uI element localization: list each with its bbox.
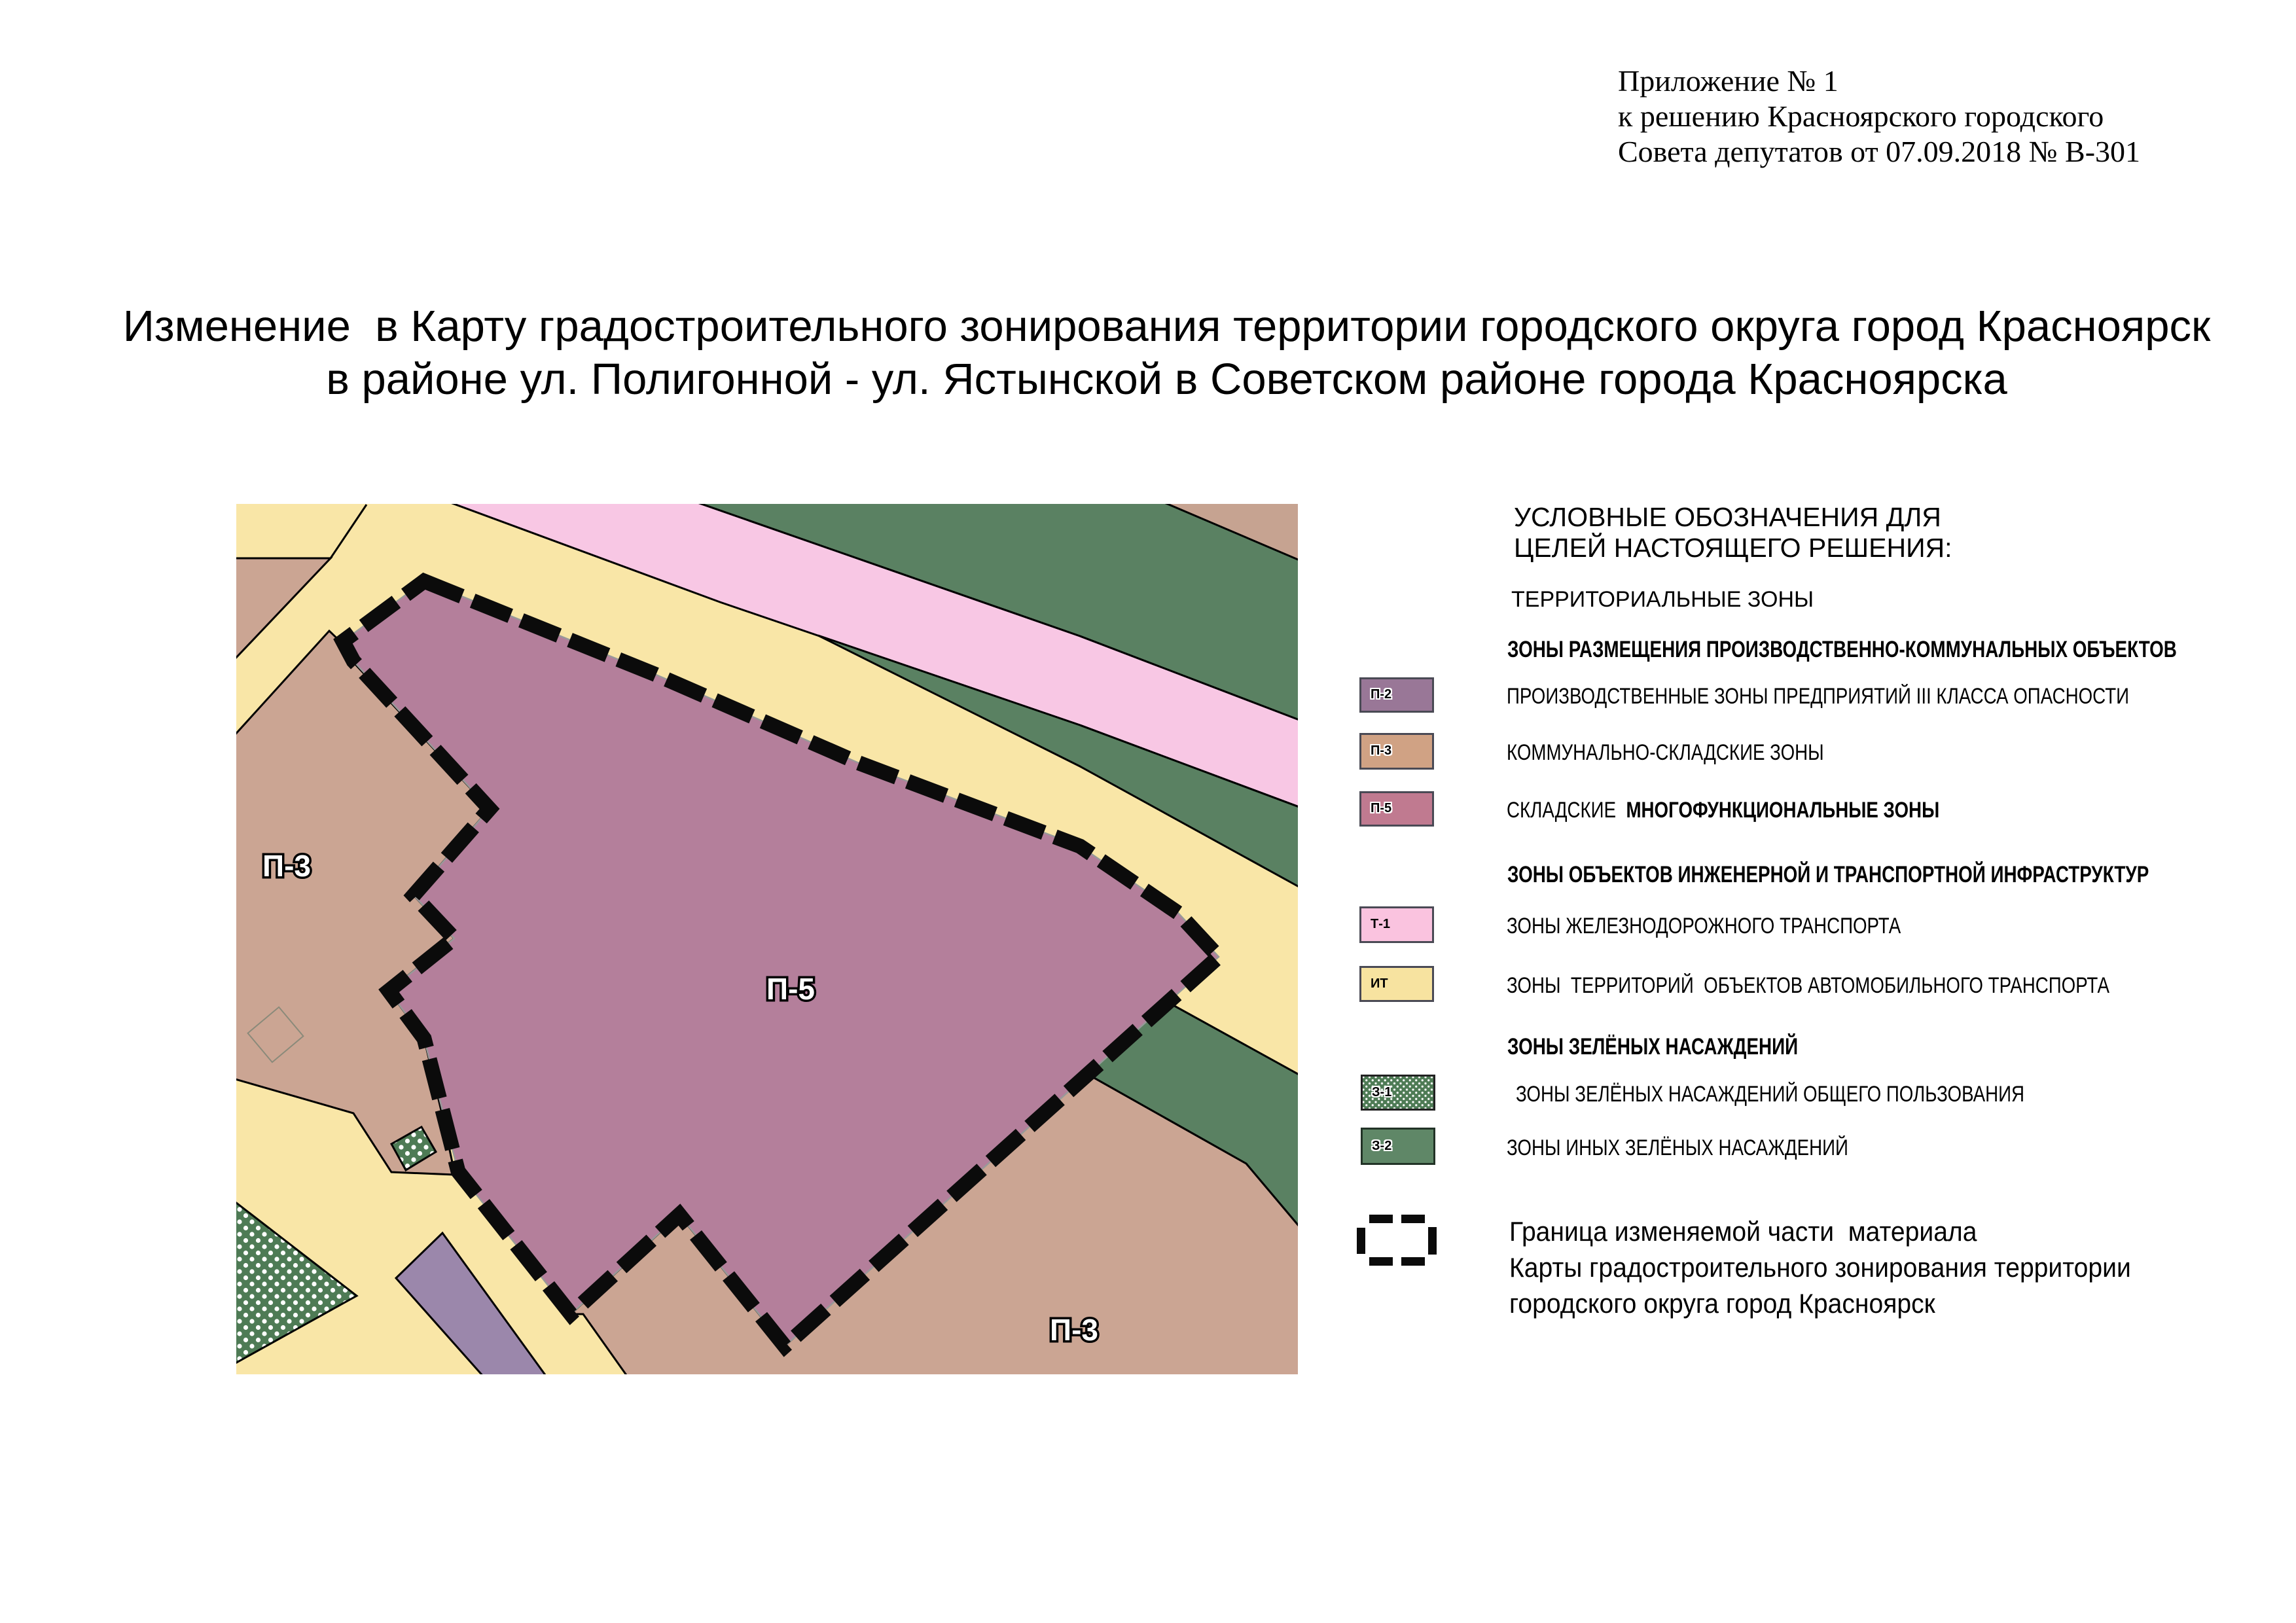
svg-text:П-3: П-3	[1050, 1313, 1098, 1347]
svg-text:П-5: П-5	[766, 972, 815, 1006]
svg-text:П-3: П-3	[262, 849, 311, 883]
